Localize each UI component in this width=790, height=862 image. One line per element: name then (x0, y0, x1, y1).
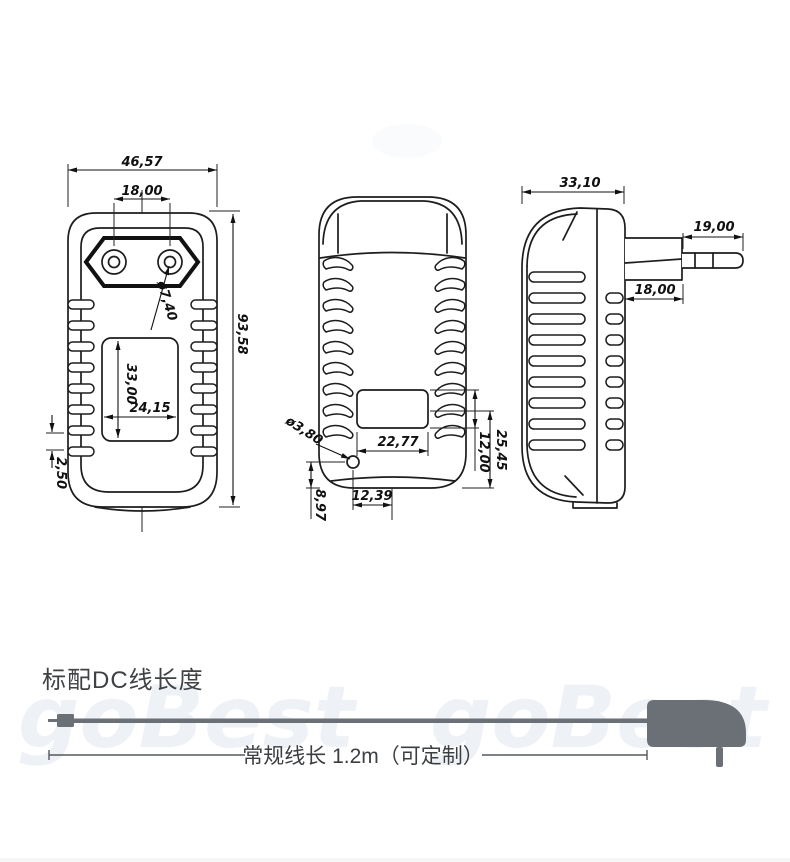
side-vent-slots (529, 272, 623, 450)
dim-back-recess-width: 22,77 (377, 435, 419, 450)
technical-drawing: 46,57 18,00 ø7,40 93,58 33,00 24,15 2,50 (0, 0, 790, 650)
plug-profile (625, 238, 743, 280)
dim-front-recess-width: 24,15 (129, 401, 170, 416)
watermark-blob (372, 124, 442, 158)
adapter-body-silhouette (647, 700, 746, 747)
dim-back-recess-height: 12,00 (476, 431, 491, 472)
section-title: 标配DC线长度 (42, 660, 204, 695)
dim-back-hole-offset-y: 8,97 (312, 489, 327, 522)
dim-back-recess-to-bottom: 25,45 (493, 429, 508, 470)
back-screw-hole (347, 456, 359, 468)
dim-front-pin-spacing: 18,00 (121, 184, 162, 199)
dim-side-plug-base-width: 18,00 (634, 283, 675, 298)
dim-front-bottom-gap: 2,50 (53, 457, 68, 489)
dc-cable-figure: 常规线长 1.2m（可定制） (0, 695, 790, 815)
adapter-pin-stub (716, 747, 723, 767)
back-view: ø3,80 22,77 12,39 8,97 12,00 25,45 (282, 197, 508, 522)
dim-front-overall-width: 46,57 (120, 155, 163, 170)
product-dimension-sheet: 46,57 18,00 ø7,40 93,58 33,00 24,15 2,50 (0, 0, 790, 862)
bottom-separator (0, 858, 790, 862)
dim-front-recess-height: 33,00 (123, 363, 138, 404)
back-label-recess (357, 390, 428, 428)
front-view: 46,57 18,00 ø7,40 93,58 33,00 24,15 2,50 (46, 155, 249, 532)
cable-length-note: 常规线长 1.2m（可定制） (242, 745, 484, 768)
cable-line (72, 719, 647, 724)
dim-side-pin-length: 19,00 (693, 220, 734, 235)
dim-front-overall-height: 93,58 (234, 313, 249, 354)
dim-back-hole-offset-x: 12,39 (351, 489, 392, 504)
dc-plug-barrel (57, 714, 74, 727)
front-label-recess (102, 338, 178, 441)
side-view: 33,10 19,00 18,00 (522, 176, 743, 508)
dim-side-depth: 33,10 (559, 176, 600, 191)
